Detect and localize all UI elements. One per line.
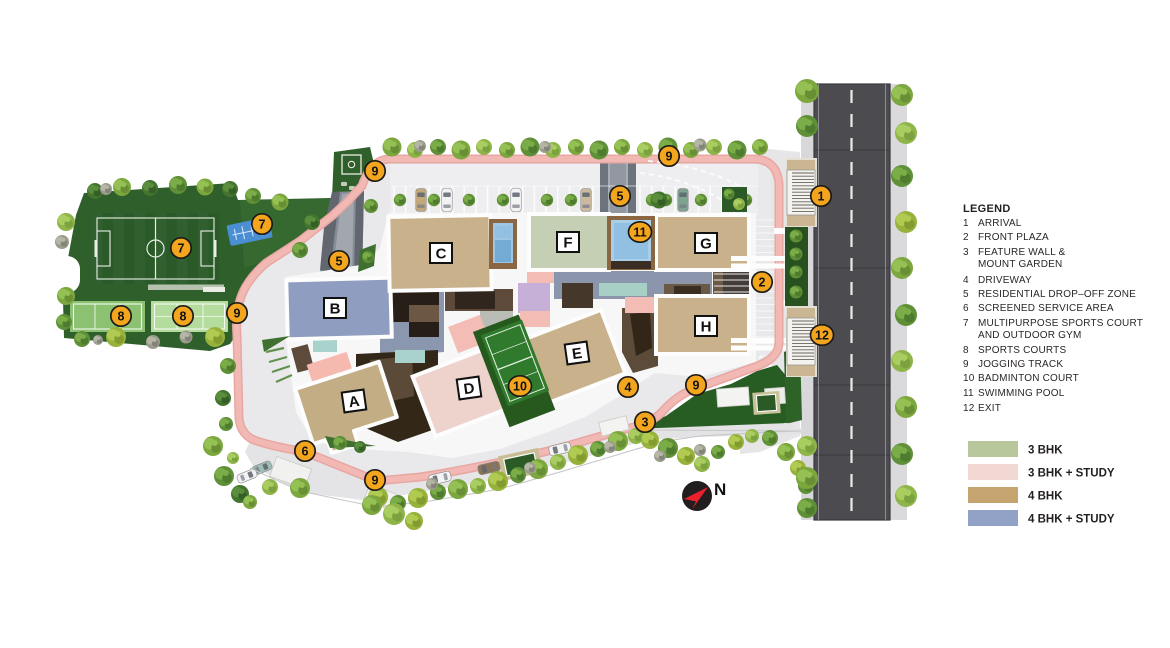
svg-text:EXIT: EXIT — [978, 403, 1001, 414]
svg-text:1: 1 — [963, 218, 969, 229]
svg-text:4 BHK + STUDY: 4 BHK + STUDY — [1028, 514, 1115, 526]
svg-text:9: 9 — [372, 164, 379, 178]
svg-text:FEATURE WALL &: FEATURE WALL & — [978, 247, 1066, 258]
svg-text:LEGEND: LEGEND — [963, 203, 1011, 215]
svg-text:H: H — [701, 319, 712, 336]
svg-text:N: N — [714, 480, 726, 499]
svg-text:7: 7 — [178, 241, 185, 255]
svg-text:10: 10 — [513, 379, 527, 393]
svg-text:4: 4 — [625, 380, 632, 394]
svg-text:FRONT PLAZA: FRONT PLAZA — [978, 232, 1049, 243]
svg-text:5: 5 — [617, 189, 624, 203]
svg-text:AND OUTDOOR GYM: AND OUTDOOR GYM — [978, 330, 1082, 341]
svg-text:3 BHK: 3 BHK — [1028, 445, 1063, 457]
svg-text:5: 5 — [963, 289, 969, 300]
svg-text:4 BHK: 4 BHK — [1028, 491, 1063, 503]
svg-text:5: 5 — [336, 254, 343, 268]
svg-text:1: 1 — [818, 189, 825, 203]
svg-text:9: 9 — [693, 378, 700, 392]
svg-text:2: 2 — [963, 232, 969, 243]
svg-text:7: 7 — [963, 318, 969, 329]
svg-text:MOUNT GARDEN: MOUNT GARDEN — [978, 259, 1062, 270]
svg-text:SCREENED SERVICE AREA: SCREENED SERVICE AREA — [978, 303, 1114, 314]
svg-text:12: 12 — [963, 403, 975, 414]
svg-text:SWIMMING POOL: SWIMMING POOL — [978, 388, 1065, 399]
svg-text:SPORTS COURTS: SPORTS COURTS — [978, 345, 1066, 356]
svg-text:11: 11 — [633, 225, 646, 239]
svg-text:JOGGING TRACK: JOGGING TRACK — [978, 359, 1063, 370]
svg-text:8: 8 — [180, 309, 187, 323]
svg-text:3: 3 — [963, 247, 969, 258]
svg-text:6: 6 — [302, 444, 309, 458]
svg-text:7: 7 — [259, 217, 266, 231]
svg-text:DRIVEWAY: DRIVEWAY — [978, 275, 1032, 286]
svg-text:3: 3 — [642, 415, 649, 429]
svg-text:12: 12 — [815, 328, 829, 342]
svg-text:8: 8 — [118, 309, 125, 323]
svg-text:11: 11 — [963, 388, 974, 399]
svg-text:9: 9 — [666, 149, 673, 163]
svg-text:BADMINTON COURT: BADMINTON COURT — [978, 373, 1079, 384]
svg-text:G: G — [700, 236, 712, 253]
svg-text:6: 6 — [963, 303, 969, 314]
svg-text:3 BHK + STUDY: 3 BHK + STUDY — [1028, 468, 1115, 480]
svg-text:2: 2 — [759, 275, 766, 289]
svg-text:10: 10 — [963, 373, 975, 384]
svg-text:4: 4 — [963, 275, 969, 286]
svg-text:C: C — [436, 246, 447, 263]
svg-text:8: 8 — [963, 345, 969, 356]
svg-text:RESIDENTIAL DROP–OFF ZONE: RESIDENTIAL DROP–OFF ZONE — [978, 289, 1136, 300]
svg-text:F: F — [563, 235, 572, 252]
svg-text:B: B — [330, 301, 341, 318]
svg-text:9: 9 — [234, 306, 241, 320]
svg-text:9: 9 — [963, 359, 969, 370]
svg-text:ARRIVAL: ARRIVAL — [978, 218, 1022, 229]
svg-text:9: 9 — [372, 473, 379, 487]
svg-text:MULTIPURPOSE SPORTS COURT: MULTIPURPOSE SPORTS COURT — [978, 318, 1143, 329]
